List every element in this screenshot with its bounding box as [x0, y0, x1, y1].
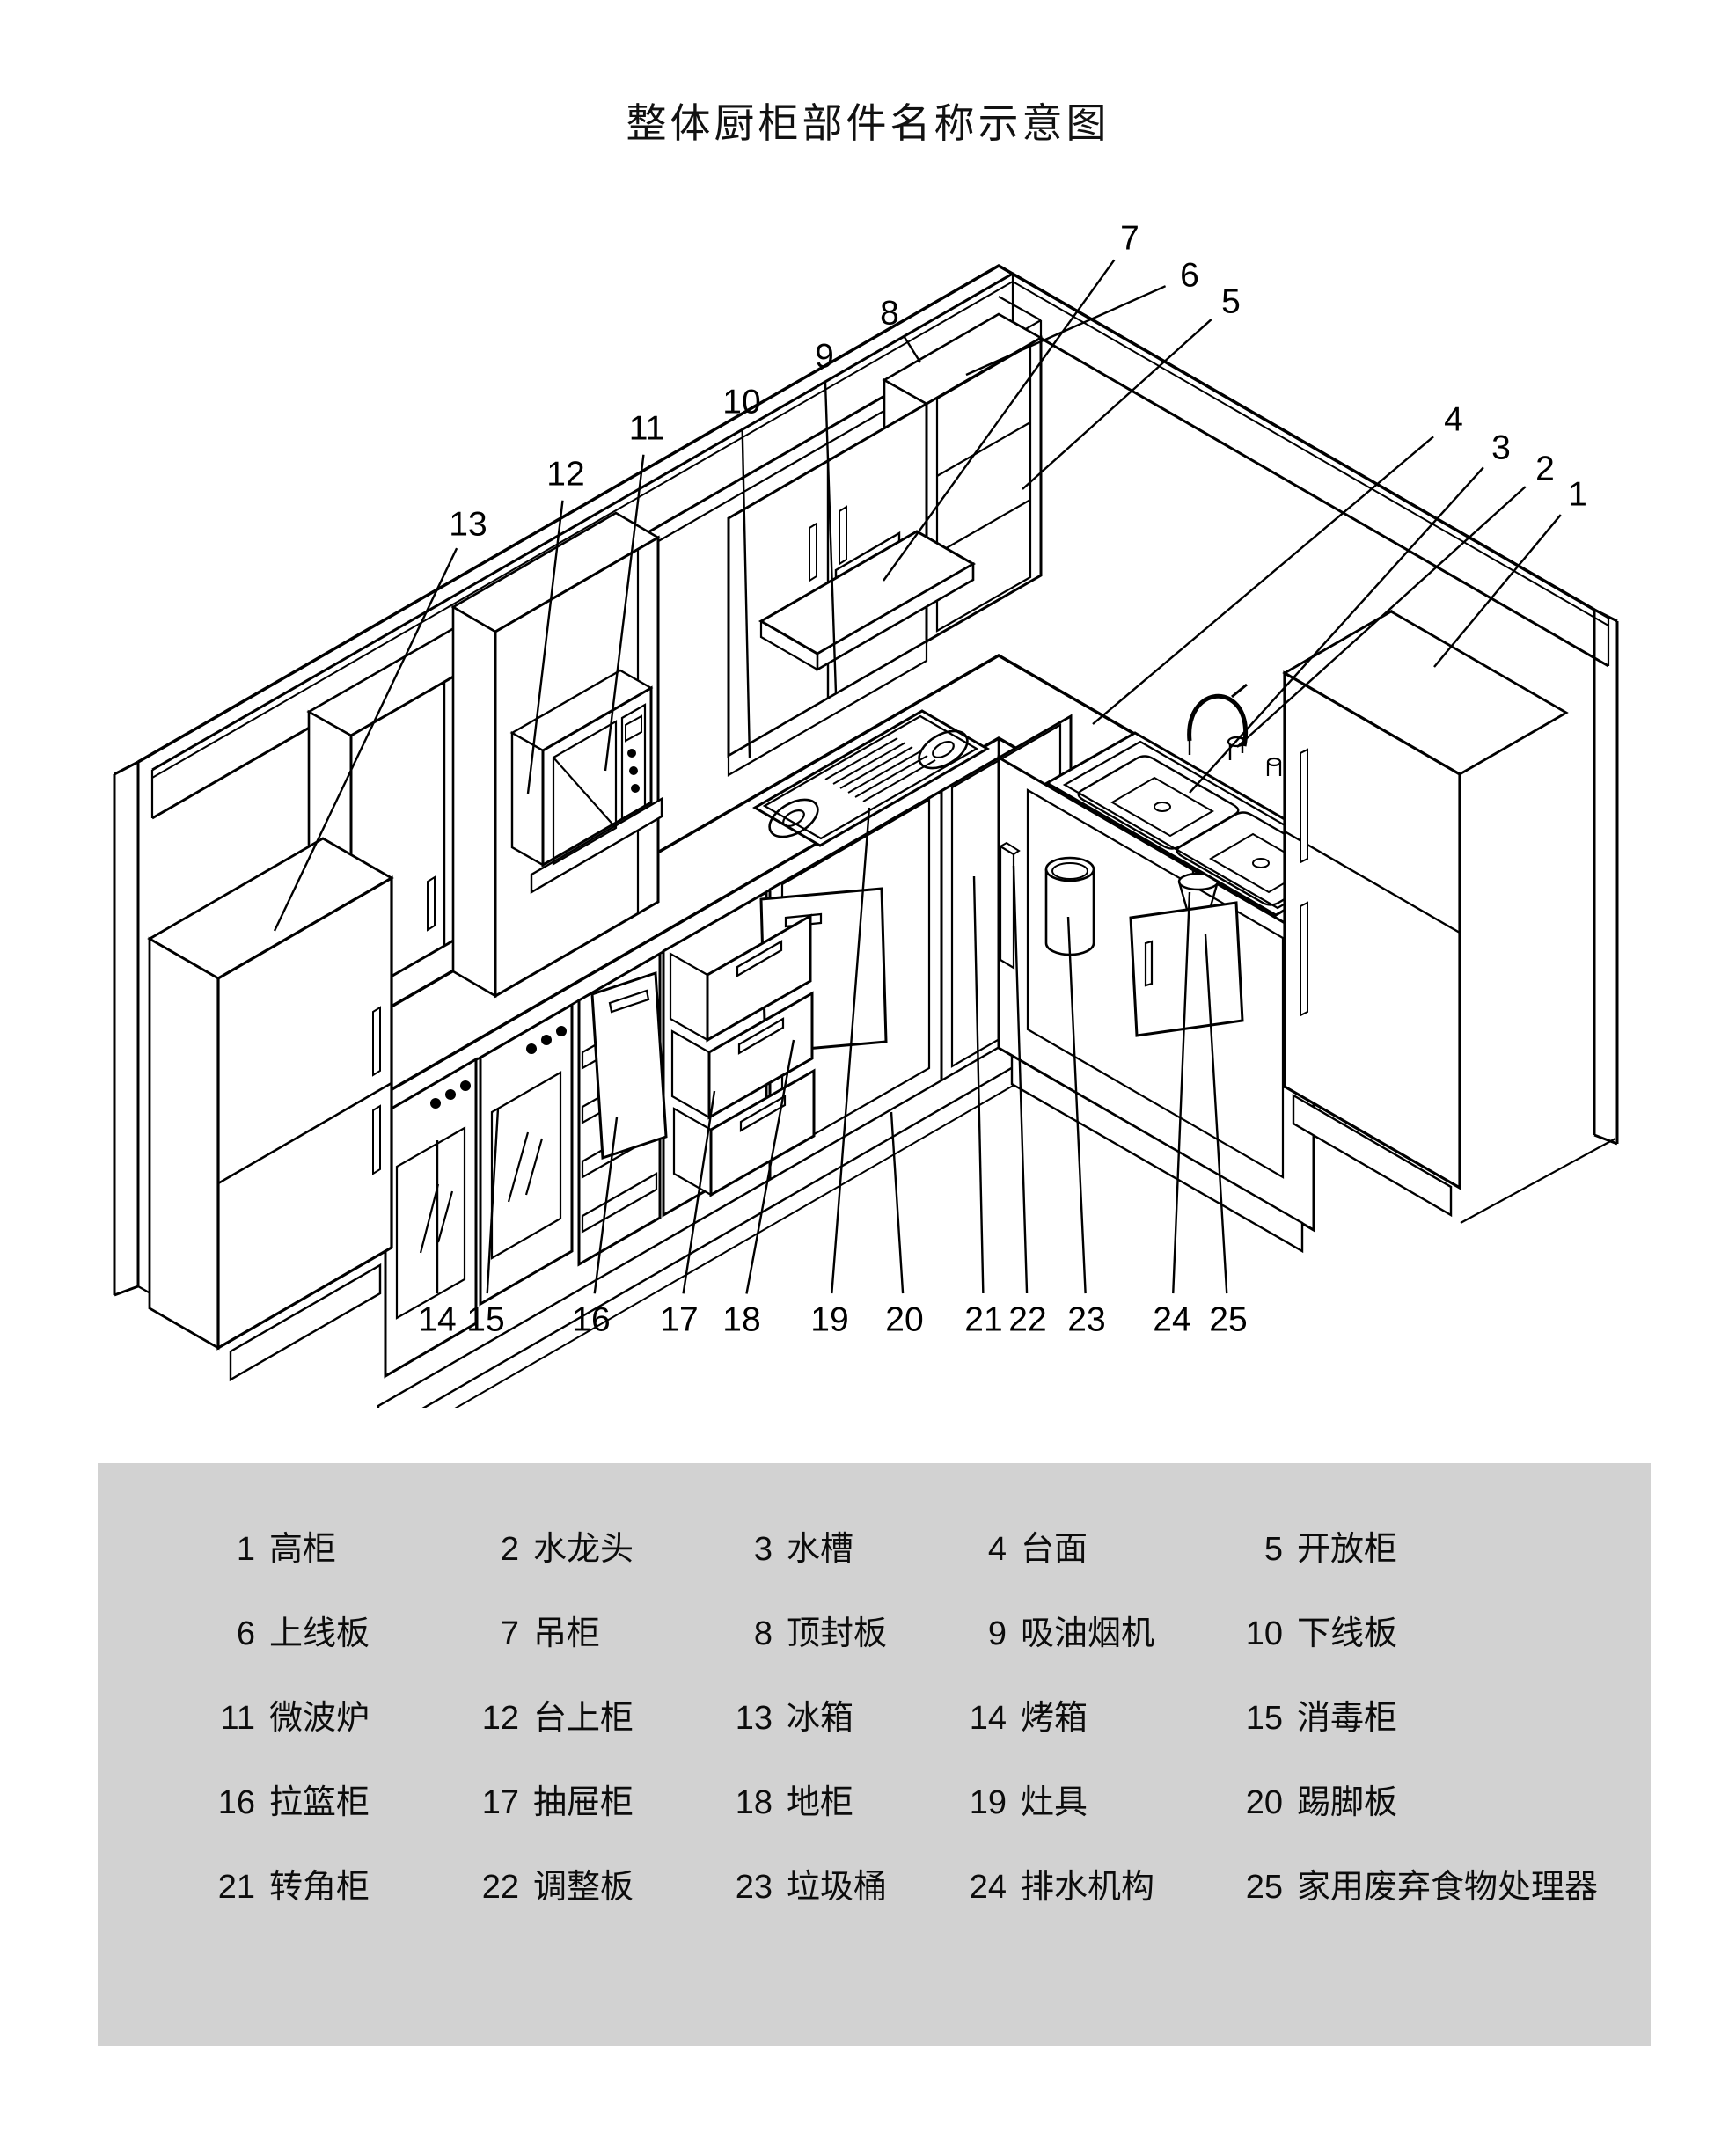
legend-label: 顶封板: [787, 1615, 887, 1652]
basket-cabinet-open-door: [592, 973, 666, 1158]
legend-label: 拉篮柜: [269, 1784, 370, 1821]
legend-item-6: 6上线板: [204, 1613, 370, 1655]
legend-label: 排水机构: [1021, 1869, 1154, 1906]
callout-number-18: 18: [722, 1301, 760, 1339]
legend-item-9: 9吸油烟机: [956, 1613, 1154, 1655]
legend-item-12: 12台上柜: [468, 1697, 634, 1739]
legend-number: 2: [468, 1528, 519, 1571]
legend-number: 18: [722, 1782, 773, 1824]
legend-label: 烤箱: [1021, 1700, 1088, 1737]
legend-label: 消毒柜: [1297, 1700, 1397, 1737]
legend-number: 14: [956, 1697, 1007, 1739]
callout-number-10: 10: [722, 384, 760, 421]
legend-label: 水槽: [787, 1531, 853, 1568]
legend-number: 8: [722, 1613, 773, 1655]
legend-number: 12: [468, 1697, 519, 1739]
legend-item-7: 7吊柜: [468, 1613, 600, 1655]
callout-number-5: 5: [1221, 283, 1241, 321]
legend-label: 开放柜: [1297, 1531, 1397, 1568]
faucet: [1190, 685, 1280, 776]
legend-label: 吊柜: [533, 1615, 600, 1652]
callout-number-22: 22: [1008, 1301, 1046, 1339]
legend-item-10: 10下线板: [1232, 1613, 1397, 1655]
legend-label: 吸油烟机: [1021, 1615, 1154, 1652]
callout-number-15: 15: [466, 1301, 504, 1339]
callout-number-11: 11: [629, 410, 665, 448]
callout-number-23: 23: [1067, 1301, 1105, 1339]
callout-number-1: 1: [1568, 476, 1587, 514]
callout-number-13: 13: [449, 506, 487, 544]
legend-label: 上线板: [269, 1615, 370, 1652]
legend-label: 家用废弃食物处理器: [1297, 1869, 1598, 1906]
legend-item-22: 22调整板: [468, 1866, 634, 1908]
legend-number: 21: [204, 1866, 255, 1908]
legend-panel: 1高柜2水龙头3水槽4台面5开放柜6上线板7吊柜8顶封板9吸油烟机10下线板11…: [98, 1463, 1651, 2046]
callout-number-20: 20: [885, 1301, 923, 1339]
legend-item-24: 24排水机构: [956, 1866, 1154, 1908]
callout-number-16: 16: [572, 1301, 610, 1339]
legend-number: 25: [1232, 1866, 1283, 1908]
callout-number-6: 6: [1180, 257, 1199, 295]
legend-item-4: 4台面: [956, 1528, 1088, 1571]
legend-item-21: 21转角柜: [204, 1866, 370, 1908]
legend-number: 5: [1232, 1528, 1283, 1571]
legend-item-18: 18地柜: [722, 1782, 853, 1824]
callout-number-2: 2: [1535, 450, 1555, 488]
legend-item-13: 13冰箱: [722, 1697, 853, 1739]
legend-number: 23: [722, 1866, 773, 1908]
legend-item-14: 14烤箱: [956, 1697, 1088, 1739]
legend-label: 垃圾桶: [787, 1869, 887, 1906]
page: 整体厨柜部件名称示意图: [0, 0, 1736, 2138]
callout-number-12: 12: [546, 456, 584, 494]
legend-item-15: 15消毒柜: [1232, 1697, 1397, 1739]
legend-label: 抽屉柜: [533, 1784, 634, 1821]
legend-number: 17: [468, 1782, 519, 1824]
callout-number-14: 14: [418, 1301, 456, 1339]
legend-number: 13: [722, 1697, 773, 1739]
legend-label: 调整板: [533, 1869, 634, 1906]
legend-item-3: 3水槽: [722, 1528, 853, 1571]
legend-item-25: 25家用废弃食物处理器: [1232, 1866, 1598, 1908]
legend-label: 台上柜: [533, 1700, 634, 1737]
legend-label: 高柜: [269, 1531, 336, 1568]
legend-item-2: 2水龙头: [468, 1528, 634, 1571]
legend-number: 19: [956, 1782, 1007, 1824]
leader-line-20: [891, 1112, 903, 1293]
refrigerator: [150, 838, 392, 1380]
legend-item-23: 23垃圾桶: [722, 1866, 887, 1908]
legend-item-19: 19灶具: [956, 1782, 1088, 1824]
callout-number-21: 21: [964, 1301, 1002, 1339]
tall-cabinet: [1285, 611, 1615, 1223]
legend-number: 7: [468, 1613, 519, 1655]
callout-number-8: 8: [880, 295, 899, 333]
legend-item-16: 16拉篮柜: [204, 1782, 370, 1824]
leader-line-1: [1434, 515, 1561, 667]
callout-number-7: 7: [1120, 220, 1139, 258]
legend-number: 6: [204, 1613, 255, 1655]
legend-label: 台面: [1021, 1531, 1088, 1568]
legend-number: 1: [204, 1528, 255, 1571]
legend-item-11: 11微波炉: [204, 1697, 370, 1739]
legend-number: 22: [468, 1866, 519, 1908]
legend-number: 11: [204, 1697, 255, 1739]
callout-number-17: 17: [660, 1301, 698, 1339]
callout-number-19: 19: [810, 1301, 848, 1339]
legend-label: 踢脚板: [1297, 1784, 1397, 1821]
callout-number-24: 24: [1153, 1301, 1190, 1339]
legend-label: 微波炉: [269, 1700, 370, 1737]
callout-number-4: 4: [1444, 401, 1463, 439]
callout-number-3: 3: [1491, 429, 1511, 467]
legend-number: 20: [1232, 1782, 1283, 1824]
legend-label: 地柜: [787, 1784, 853, 1821]
legend-number: 9: [956, 1613, 1007, 1655]
legend-item-20: 20踢脚板: [1232, 1782, 1397, 1824]
kitchen-diagram: 1234567891011121314151617181920212223242…: [0, 0, 1736, 1408]
legend-number: 10: [1232, 1613, 1283, 1655]
legend-number: 16: [204, 1782, 255, 1824]
legend-number: 24: [956, 1866, 1007, 1908]
legend-label: 转角柜: [269, 1869, 370, 1906]
legend-label: 冰箱: [787, 1700, 853, 1737]
callout-number-9: 9: [815, 338, 834, 376]
legend-number: 15: [1232, 1697, 1283, 1739]
legend-label: 下线板: [1297, 1615, 1397, 1652]
legend-label: 水龙头: [533, 1531, 634, 1568]
legend-number: 4: [956, 1528, 1007, 1571]
legend-label: 灶具: [1021, 1784, 1088, 1821]
legend-item-17: 17抽屉柜: [468, 1782, 634, 1824]
legend-item-5: 5开放柜: [1232, 1528, 1397, 1571]
legend-item-8: 8顶封板: [722, 1613, 887, 1655]
legend-number: 3: [722, 1528, 773, 1571]
callout-number-25: 25: [1209, 1301, 1247, 1339]
legend-item-1: 1高柜: [204, 1528, 336, 1571]
